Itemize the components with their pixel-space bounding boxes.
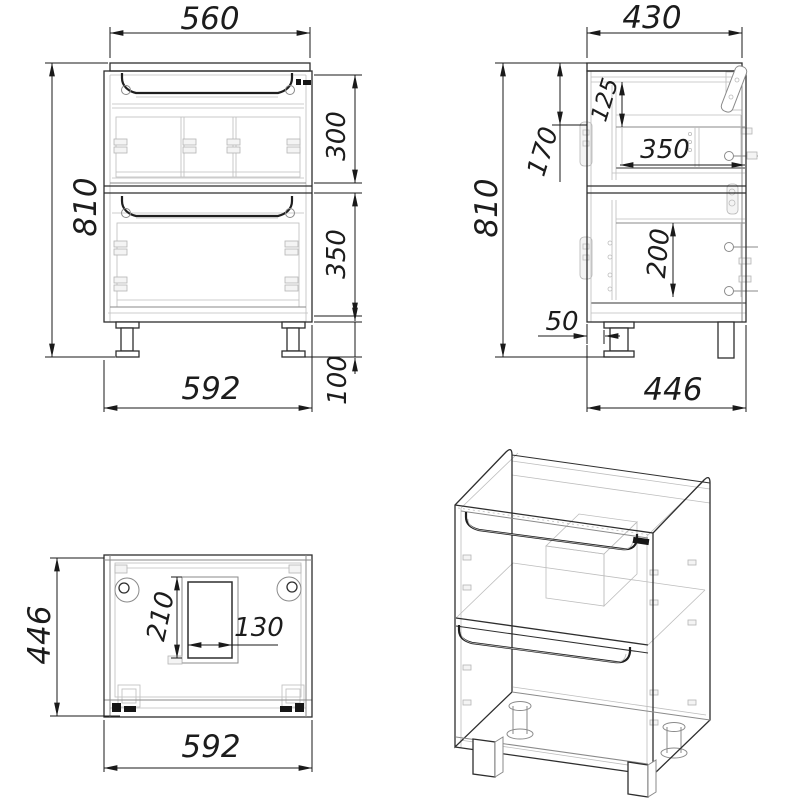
side-back-leg bbox=[718, 322, 734, 358]
dim-side-height: 810 bbox=[469, 178, 505, 237]
iso-front-left-leg bbox=[473, 737, 503, 777]
wall-bracket bbox=[720, 64, 748, 113]
dim-front-top-width: 560 bbox=[180, 1, 239, 37]
plan-left-hole bbox=[115, 578, 139, 602]
side-view: 430 810 170 125 350 200 50 446 bbox=[469, 0, 758, 412]
dim-side-lower-inner-height: 200 bbox=[642, 227, 676, 279]
side-front-leg bbox=[604, 322, 634, 357]
dim-plan-depth: 446 bbox=[22, 605, 58, 664]
front-left-leg bbox=[116, 322, 139, 357]
plan-cutout-outer bbox=[182, 577, 238, 663]
iso-back-feet bbox=[507, 702, 687, 759]
plan-view: 446 210 130 592 bbox=[22, 555, 312, 772]
dim-plan-cutout-length: 210 bbox=[141, 589, 181, 644]
dim-front-height: 810 bbox=[68, 177, 104, 236]
dim-side-top-depth: 430 bbox=[622, 0, 681, 36]
front-countertop bbox=[110, 63, 310, 71]
dim-side-depth: 446 bbox=[643, 372, 702, 408]
plan-right-hole bbox=[277, 577, 301, 601]
dim-plan-width: 592 bbox=[181, 729, 240, 765]
iso-sink-housing bbox=[546, 546, 604, 606]
dim-front-lower-section: 350 bbox=[322, 229, 352, 279]
dim-front-leg-height: 100 bbox=[323, 355, 353, 405]
iso-upper-handle-recess bbox=[466, 512, 637, 549]
dim-side-back-rail-drop: 170 bbox=[522, 124, 565, 180]
plan-cutout-inner bbox=[188, 582, 232, 658]
side-countertop bbox=[587, 63, 742, 71]
front-carcass bbox=[104, 71, 312, 322]
dim-front-upper-section: 300 bbox=[322, 111, 352, 161]
iso-front-right-leg bbox=[628, 760, 656, 797]
front-view: 560 810 300 350 100 592 bbox=[45, 1, 362, 412]
front-right-leg bbox=[282, 322, 305, 357]
dim-plan-cutout-width: 130 bbox=[234, 613, 284, 643]
iso-view bbox=[455, 450, 710, 797]
dim-side-drawer-depth: 350 bbox=[640, 135, 690, 165]
dim-side-drawer-top-drop: 125 bbox=[586, 75, 624, 125]
dim-front-width: 592 bbox=[181, 371, 240, 407]
cabinet-technical-drawing: 560 810 300 350 100 592 bbox=[0, 0, 793, 800]
front-upper-handle-recess bbox=[122, 73, 292, 93]
dim-side-leg-setback: 50 bbox=[545, 307, 578, 337]
